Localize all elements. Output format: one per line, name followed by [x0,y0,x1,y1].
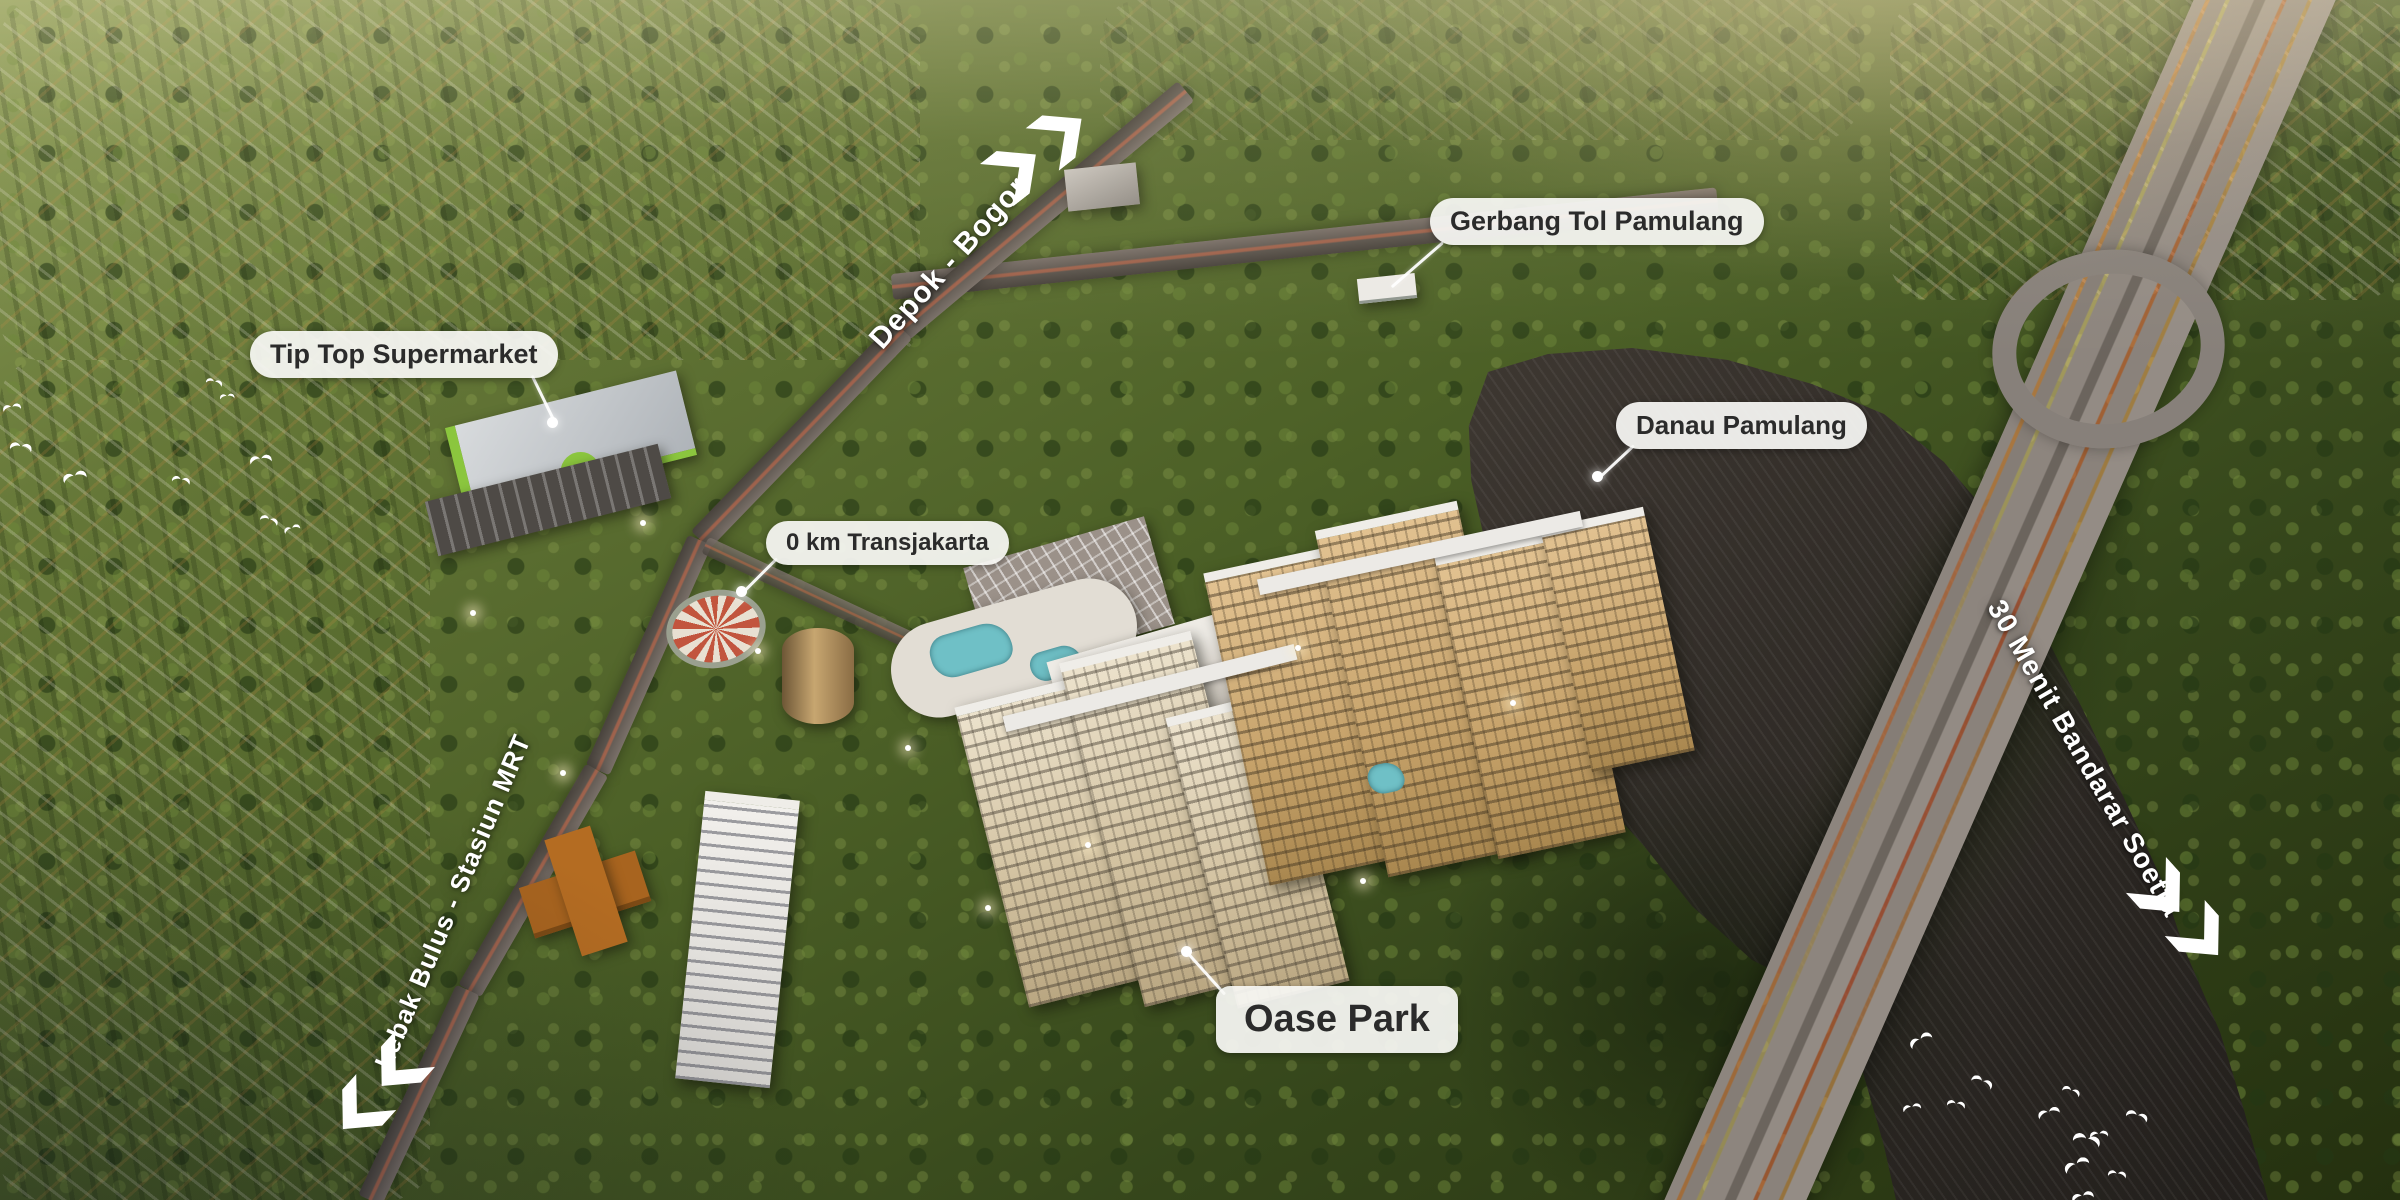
gold-cylinder-building [782,628,854,724]
label-gerbang-tol-pamulang: Gerbang Tol Pamulang [1430,198,1764,245]
street-light [1085,842,1091,848]
leader-dot [1592,471,1603,482]
leader-dot [736,586,747,597]
suburb-area [0,0,920,360]
bird-icon [9,440,34,455]
street-light [470,610,476,616]
bird-icon [2090,1129,2111,1141]
label-oase-park: Oase Park [1216,986,1458,1053]
suburb-area [1100,0,1860,140]
street-light [1295,645,1301,651]
street-light [1510,700,1516,706]
street-light [560,770,566,776]
label-0km-transjakarta: 0 km Transjakarta [766,521,1009,565]
street-light [905,745,911,751]
leader-dot [1181,946,1192,957]
bird-icon [1946,1098,1967,1111]
bird-icon [2107,1169,2128,1182]
street-light [1360,878,1366,884]
street-light [640,520,646,526]
label-tip-top-supermarket: Tip Top Supermarket [250,331,558,378]
bird-icon [220,392,237,401]
aerial-map: Tip Top Supermarket Gerbang Tol Pamulang… [0,0,2400,1200]
street-light [985,905,991,911]
label-danau-pamulang: Danau Pamulang [1616,402,1867,449]
leader-dot [547,417,558,428]
street-light [755,648,761,654]
low-rise-building [1064,162,1140,211]
